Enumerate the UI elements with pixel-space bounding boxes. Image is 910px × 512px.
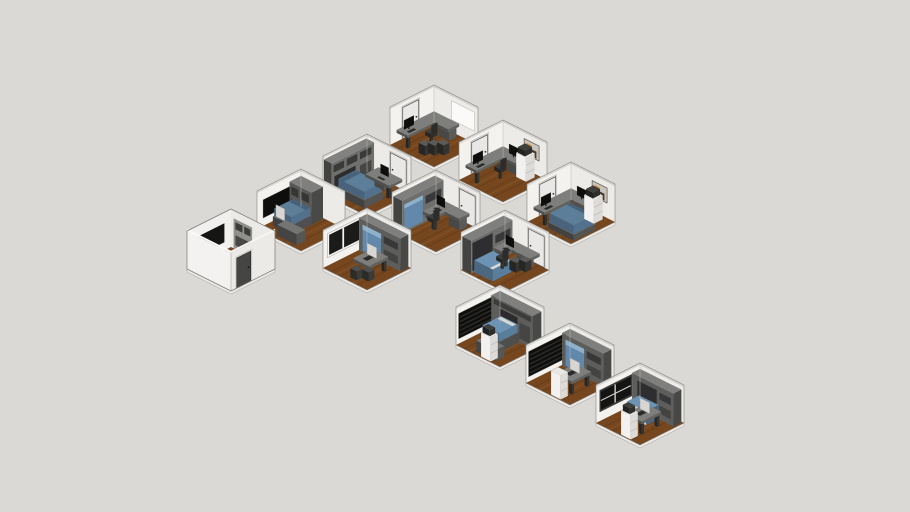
room-murphy-office-2[interactable] (461, 210, 549, 296)
door-handle (461, 205, 463, 207)
file-cabinet (584, 195, 594, 224)
cabinet (631, 412, 638, 440)
cabinet (551, 371, 561, 400)
murphy-unit (400, 235, 408, 272)
window-mullion (342, 227, 344, 248)
cabinet (481, 333, 491, 362)
desk-leg (384, 260, 386, 272)
door-handle (248, 266, 250, 268)
door-handle (553, 193, 555, 195)
file-cabinet (516, 153, 526, 182)
cabinet (561, 372, 568, 400)
desk-leg (657, 415, 659, 427)
murphy-unit (673, 390, 681, 427)
wall-unit (312, 187, 323, 225)
desk-leg (389, 187, 391, 199)
cabinet (621, 411, 631, 440)
room-shell[interactable] (187, 209, 275, 295)
model-viewport[interactable] (0, 0, 910, 512)
desk-leg (642, 422, 644, 434)
room-studio-3[interactable] (596, 363, 684, 449)
room-studio-1[interactable] (323, 208, 411, 294)
murphy-unit (462, 236, 471, 273)
desk-leg (572, 382, 574, 394)
desk-leg (587, 375, 589, 387)
door-handle (530, 245, 532, 247)
file-cabinet (594, 195, 603, 223)
door-handle (485, 151, 487, 153)
door-handle (416, 116, 418, 118)
cabinet (491, 334, 498, 362)
